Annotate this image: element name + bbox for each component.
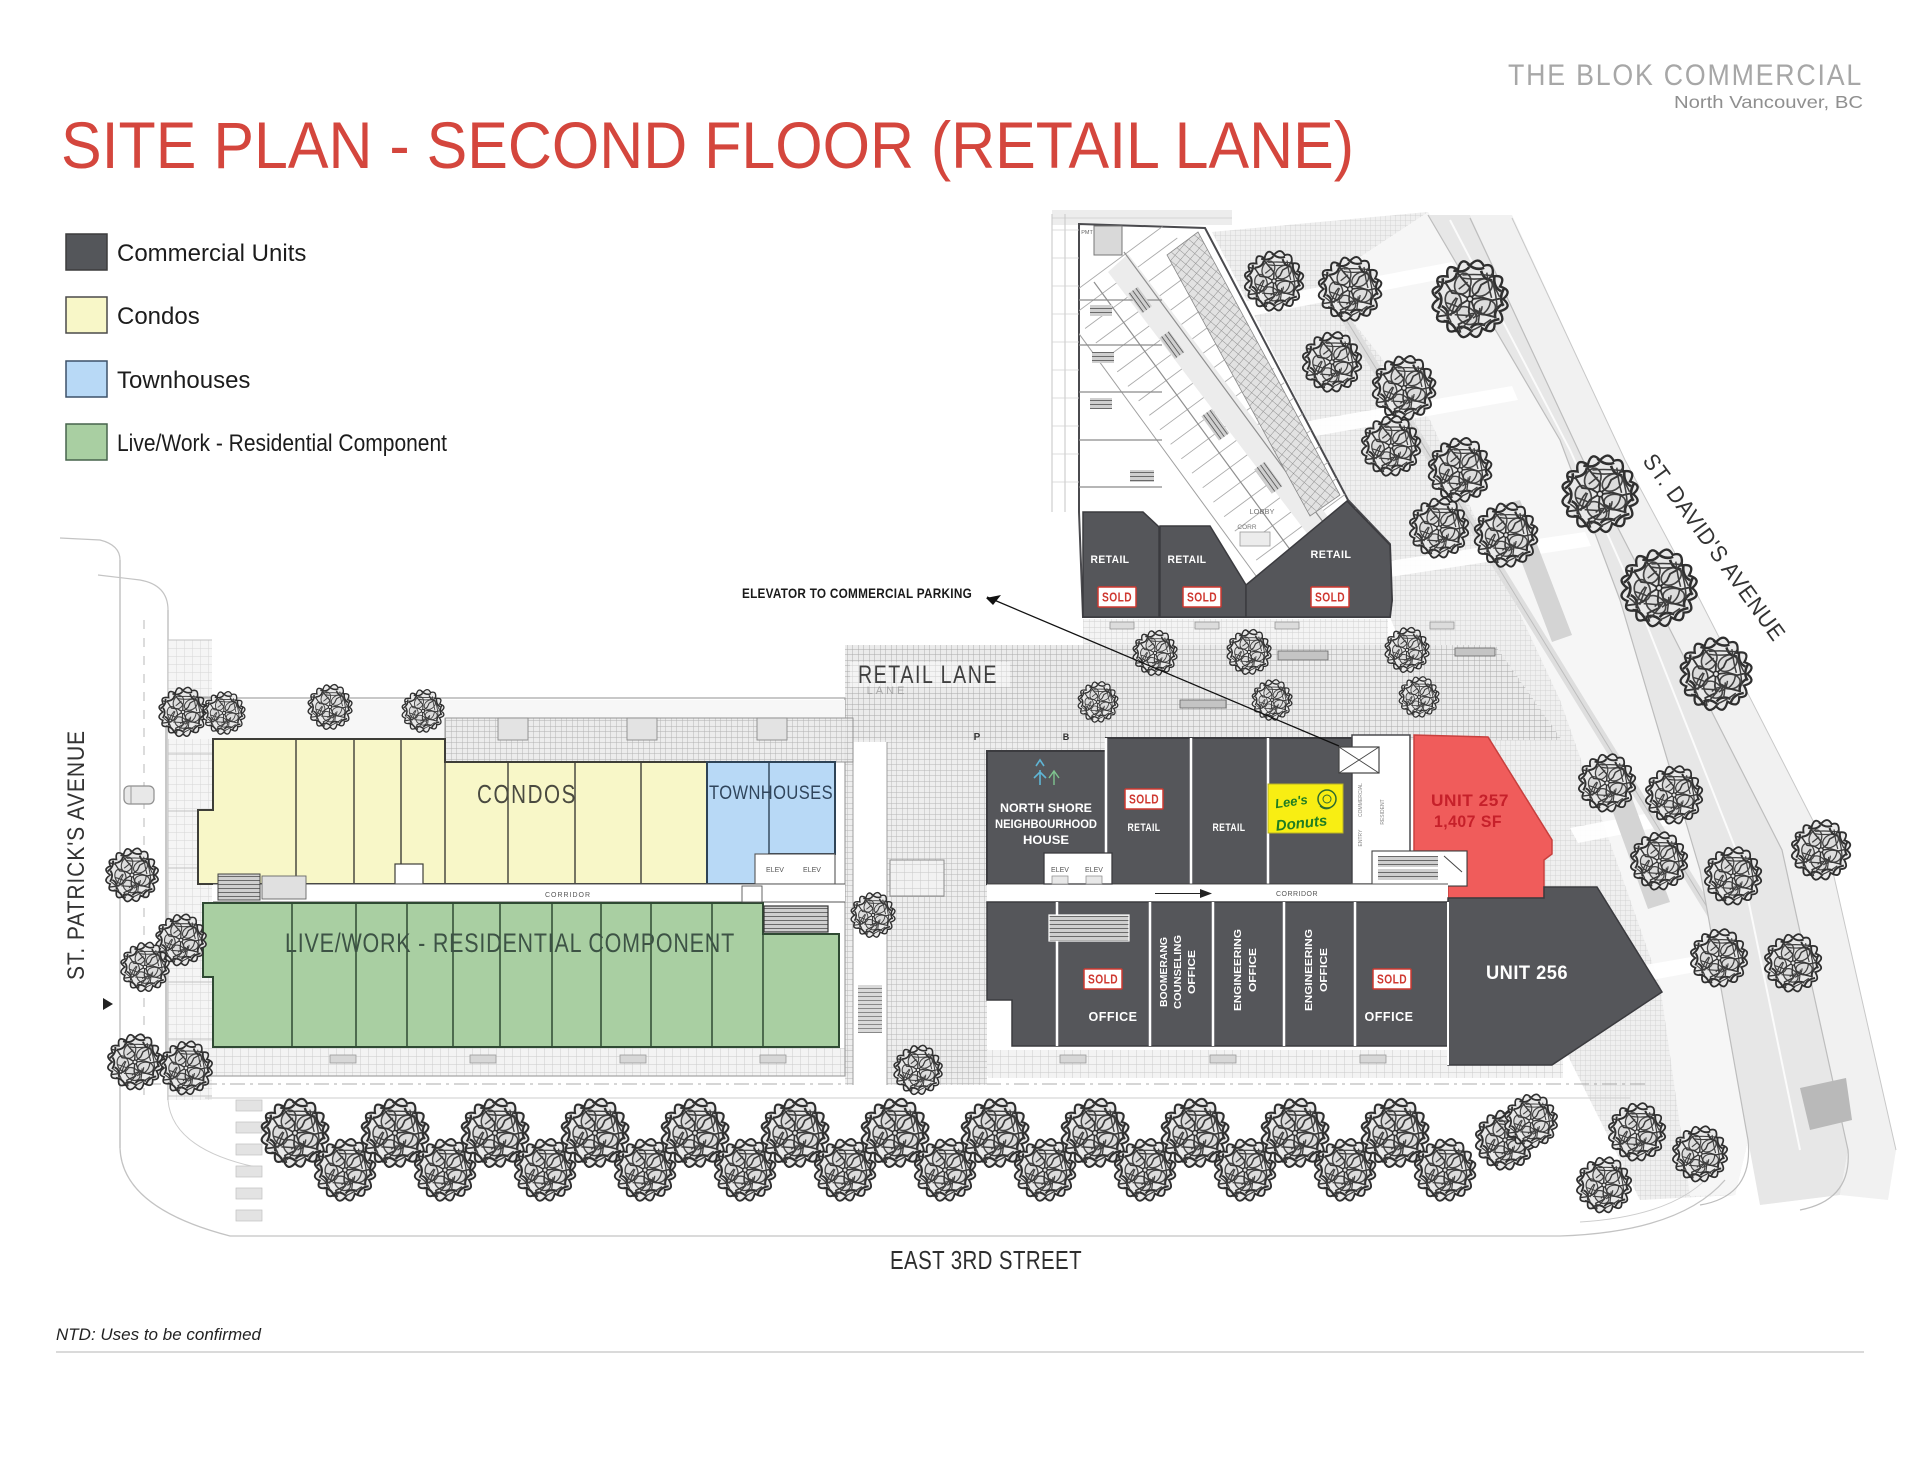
svg-text:OFFICE: OFFICE (1186, 950, 1198, 994)
svg-text:THE BLOK COMMERCIAL: THE BLOK COMMERCIAL (1508, 59, 1863, 92)
svg-text:LIVE/WORK - RESIDENTIAL COMPON: LIVE/WORK - RESIDENTIAL COMPONENT (285, 928, 735, 958)
svg-text:COUNSELING: COUNSELING (1172, 935, 1184, 1009)
svg-text:UNIT 256: UNIT 256 (1486, 963, 1568, 984)
svg-text:COMMERCIAL: COMMERCIAL (1358, 783, 1364, 817)
svg-text:Commercial Units: Commercial Units (117, 240, 306, 267)
svg-text:HOUSE: HOUSE (1023, 835, 1069, 847)
svg-text:1,407 SF: 1,407 SF (1434, 813, 1502, 831)
svg-text:OFFICE: OFFICE (1247, 948, 1259, 992)
svg-text:RETAIL: RETAIL (1168, 554, 1207, 566)
svg-text:PMT: PMT (1081, 230, 1093, 236)
svg-text:RESIDENT: RESIDENT (1380, 799, 1386, 824)
svg-text:EAST 3RD STREET: EAST 3RD STREET (890, 1245, 1082, 1275)
svg-text:OFFICE: OFFICE (1318, 948, 1330, 992)
svg-text:ELEV: ELEV (1085, 867, 1103, 874)
svg-text:LOBBY: LOBBY (1249, 507, 1274, 516)
svg-text:SITE PLAN - SECOND FLOOR (RETA: SITE PLAN - SECOND FLOOR (RETAIL LANE) (61, 108, 1354, 182)
svg-text:North Vancouver, BC: North Vancouver, BC (1674, 92, 1863, 112)
svg-text:OFFICE: OFFICE (1365, 1010, 1414, 1024)
svg-text:OFFICE: OFFICE (1089, 1010, 1138, 1024)
svg-text:UNIT 257: UNIT 257 (1431, 792, 1509, 810)
svg-text:TOWNHOUSES: TOWNHOUSES (709, 783, 833, 804)
svg-text:SOLD: SOLD (1187, 591, 1217, 605)
svg-text:RETAIL: RETAIL (1213, 822, 1246, 834)
svg-text:NEIGHBOURHOOD: NEIGHBOURHOOD (995, 819, 1097, 831)
svg-text:ENGINEERING: ENGINEERING (1303, 929, 1315, 1011)
svg-text:SOLD: SOLD (1129, 793, 1159, 807)
svg-text:SOLD: SOLD (1315, 591, 1345, 605)
svg-text:RETAIL: RETAIL (1128, 822, 1161, 834)
svg-text:SOLD: SOLD (1088, 973, 1118, 987)
svg-text:NORTH SHORE: NORTH SHORE (1000, 803, 1092, 815)
svg-text:RETAIL: RETAIL (1311, 549, 1352, 561)
svg-text:ENTRY: ENTRY (1358, 829, 1364, 847)
svg-text:SOLD: SOLD (1102, 591, 1132, 605)
svg-text:ELEV: ELEV (1051, 867, 1069, 874)
svg-text:CORRIDOR: CORRIDOR (1276, 891, 1318, 898)
svg-text:Condos: Condos (117, 303, 200, 330)
svg-text:Live/Work - Residential Compon: Live/Work - Residential Component (117, 430, 447, 457)
svg-text:CORRIDOR: CORRIDOR (545, 892, 591, 899)
svg-text:B: B (1063, 732, 1070, 742)
svg-text:SOLD: SOLD (1377, 973, 1407, 987)
svg-text:RETAIL: RETAIL (1091, 554, 1130, 566)
svg-text:CONDOS: CONDOS (477, 779, 577, 809)
svg-text:ELEVATOR TO COMMERCIAL PARKING: ELEVATOR TO COMMERCIAL PARKING (742, 585, 972, 601)
svg-text:ELEV: ELEV (803, 867, 821, 874)
svg-text:ST. PATRICK'S AVENUE: ST. PATRICK'S AVENUE (63, 730, 90, 980)
svg-text:P: P (974, 732, 981, 743)
svg-text:ENGINEERING: ENGINEERING (1232, 929, 1244, 1011)
svg-text:NTD: Uses to be confirmed: NTD: Uses to be confirmed (56, 1325, 262, 1344)
svg-text:ELEV: ELEV (766, 867, 784, 874)
svg-text:BOOMERANG: BOOMERANG (1158, 937, 1170, 1007)
svg-text:LANE: LANE (867, 685, 908, 697)
svg-text:Townhouses: Townhouses (117, 367, 250, 394)
svg-text:CORR: CORR (1237, 524, 1256, 531)
